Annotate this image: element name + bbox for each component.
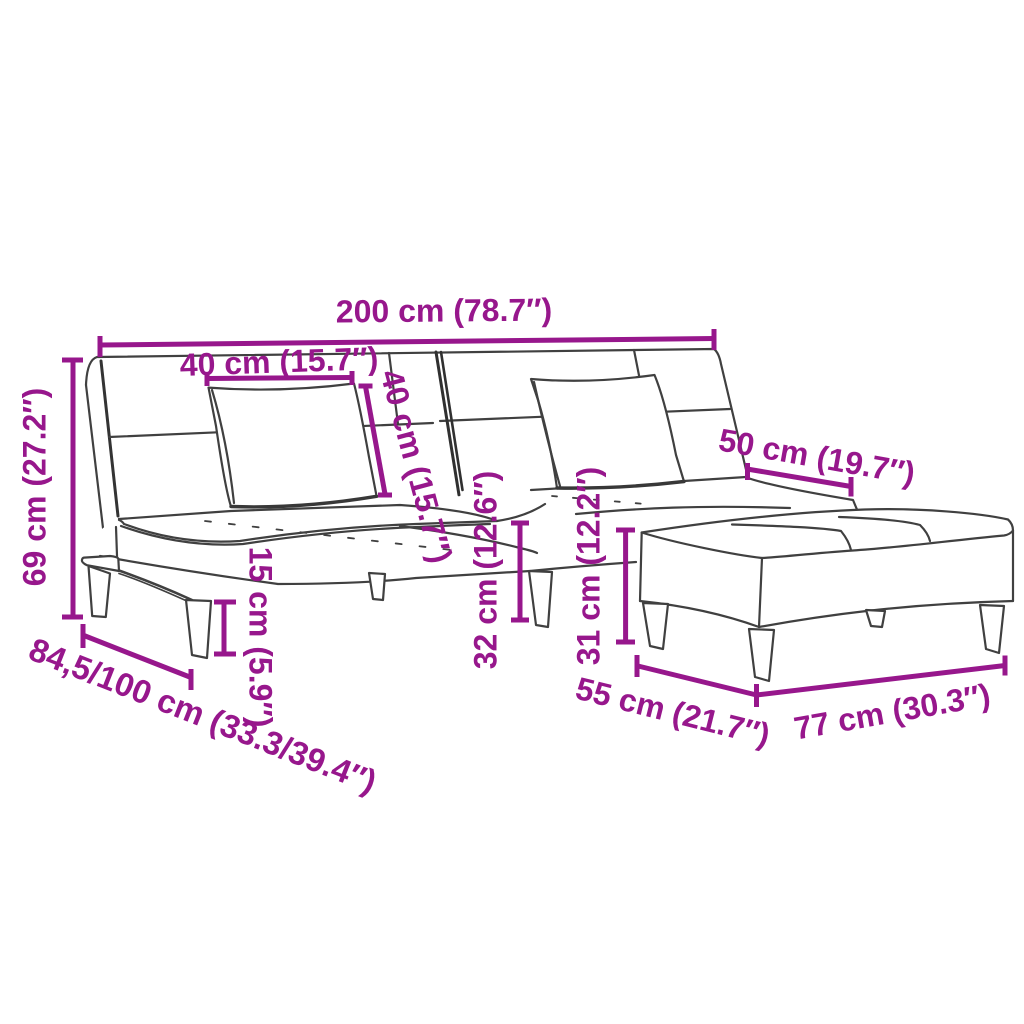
svg-text:200 cm (78.7″): 200 cm (78.7″) bbox=[336, 292, 553, 330]
svg-text:40 cm (15.7″): 40 cm (15.7″) bbox=[179, 340, 379, 383]
svg-text:15 cm (5.9″): 15 cm (5.9″) bbox=[242, 547, 278, 728]
svg-text:32 cm (12.6″): 32 cm (12.6″) bbox=[468, 471, 504, 670]
svg-text:69 cm (27.2″): 69 cm (27.2″) bbox=[17, 388, 53, 587]
svg-text:31 cm (12.2″): 31 cm (12.2″) bbox=[571, 467, 607, 666]
